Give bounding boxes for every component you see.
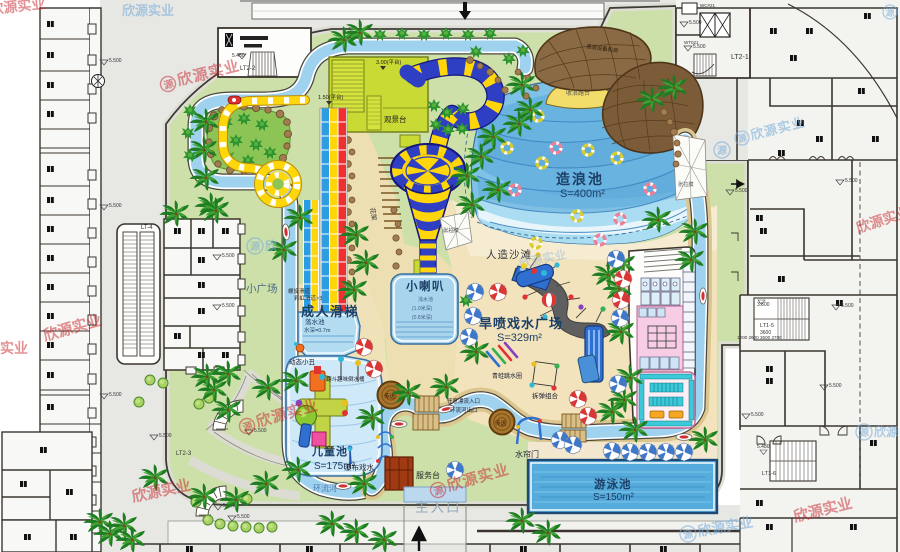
svg-text:源: 源 (886, 7, 895, 18)
svg-text:主入口: 主入口 (415, 500, 462, 515)
svg-text:源: 源 (717, 144, 727, 157)
svg-text:旱喷戏水广场: 旱喷戏水广场 (479, 316, 563, 331)
svg-text:翻斗趣味倒水桶: 翻斗趣味倒水桶 (326, 375, 365, 383)
svg-text:源: 源 (859, 426, 869, 439)
svg-text:游泳池: 游泳池 (594, 477, 632, 491)
svg-text:LT1-6: LT1-6 (762, 471, 776, 477)
svg-text:LT-4: LT-4 (141, 225, 153, 231)
svg-text:欣: 欣 (265, 238, 278, 253)
svg-text:LT1-5: LT1-5 (760, 323, 774, 329)
svg-text:水深=0.7m: 水深=0.7m (304, 326, 331, 334)
svg-text:水帘门: 水帘门 (515, 449, 539, 459)
svg-text:青蛙跳水圈: 青蛙跳水圈 (492, 372, 522, 380)
svg-text:(0.8米深): (0.8米深) (412, 314, 433, 321)
svg-text:小广场: 小广场 (246, 282, 278, 295)
svg-text:拆弹组合: 拆弹组合 (532, 391, 559, 400)
svg-text:(1.0米深): (1.0米深) (412, 305, 433, 312)
svg-text:浅水池: 浅水池 (418, 296, 433, 303)
svg-text:环流河出口: 环流河出口 (450, 406, 478, 414)
svg-text:张拉膜: 张拉膜 (443, 226, 459, 234)
svg-text:欣源实业: 欣源实业 (122, 3, 174, 18)
svg-text:S=400m²: S=400m² (560, 188, 605, 200)
svg-text:观景台: 观景台 (384, 114, 407, 124)
svg-text:LT2-3: LT2-3 (176, 451, 192, 457)
svg-text:LT2-2: LT2-2 (240, 66, 256, 72)
svg-text:小喇叭: 小喇叭 (405, 279, 445, 293)
svg-text:源: 源 (250, 240, 260, 253)
svg-text:S=329m²: S=329m² (497, 332, 542, 344)
svg-text:WC#21: WC#21 (700, 3, 716, 8)
svg-text:LT2-1: LT2-1 (731, 54, 749, 61)
svg-text:瀑布戏水: 瀑布戏水 (344, 462, 374, 472)
svg-text:3.00(平台): 3.00(平台) (376, 58, 402, 66)
svg-text:动态小丑: 动态小丑 (289, 357, 316, 366)
svg-text:成人滑梯: 成人滑梯 (301, 304, 359, 319)
svg-text:源实业: 源实业 (0, 340, 28, 356)
svg-text:服务台: 服务台 (416, 470, 440, 480)
svg-text:造浪池: 造浪池 (556, 171, 604, 187)
svg-text:S=150m²: S=150m² (593, 492, 635, 503)
svg-text:环流河: 环流河 (313, 483, 337, 493)
svg-text:传送: 传送 (495, 419, 507, 427)
svg-text:1200 2600 3600 2700: 1200 2600 3600 2700 (737, 335, 782, 340)
svg-text:落水池: 落水池 (305, 317, 325, 326)
svg-text:任意漂流入口: 任意漂流入口 (447, 397, 480, 405)
svg-text:彩虹滑道×3: 彩虹滑道×3 (294, 294, 322, 302)
svg-text:1.50(平台): 1.50(平台) (318, 93, 344, 101)
svg-text:张拉膜: 张拉膜 (678, 180, 694, 188)
svg-text:欣源: 欣源 (874, 424, 898, 439)
svg-text:儿童池: 儿童池 (311, 444, 348, 458)
svg-text:5.480: 5.480 (757, 444, 770, 450)
svg-text:3.500: 3.500 (757, 302, 770, 308)
svg-text:螺旋滑道: 螺旋滑道 (288, 287, 311, 295)
